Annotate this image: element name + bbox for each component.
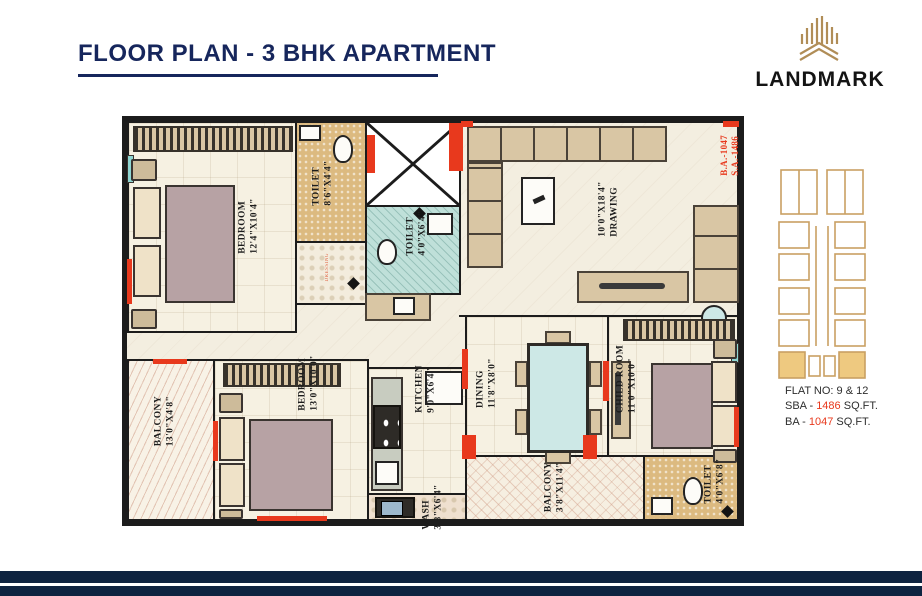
- stove: [373, 405, 401, 449]
- brand-logo: LANDMARK: [740, 14, 900, 92]
- pillow: [133, 187, 161, 239]
- label-drawing: 10'0"X18'4"DRAWING: [598, 181, 621, 237]
- landmark-building-icon: [788, 14, 852, 66]
- label-balcony-2: BALCONY3'8"X11'4": [544, 462, 567, 512]
- flat-number-line: FLAT NO: 9 & 12: [785, 384, 878, 399]
- door-accent: [367, 135, 375, 173]
- label-balcony-1: BALCONY13'0"X4'8": [154, 396, 177, 446]
- lift-x-icon: [367, 123, 459, 205]
- brand-name: LANDMARK: [740, 68, 900, 92]
- title-underline: [78, 74, 438, 77]
- door-accent: [257, 516, 327, 521]
- sink: [427, 213, 453, 235]
- tv: [599, 283, 665, 289]
- door-accent: [603, 361, 609, 401]
- bed-2: [249, 419, 333, 511]
- wardrobe-2: [223, 363, 341, 387]
- door-accent: [723, 121, 739, 127]
- toilet-wc: [683, 477, 703, 505]
- pillow: [133, 245, 161, 297]
- label-wash: WASH3'8"X6'4": [422, 484, 445, 529]
- lift-shaft: [365, 121, 461, 207]
- chair: [589, 409, 602, 435]
- side-table: [219, 509, 243, 519]
- sofa-left: [467, 162, 503, 268]
- dining-table: [527, 343, 589, 453]
- label-toilet-2: TOILET4'0"X6'4": [406, 210, 429, 255]
- dressing-area: [295, 241, 367, 305]
- pillow: [711, 361, 737, 403]
- sofa-row: [467, 126, 667, 162]
- bed-1: [165, 185, 235, 303]
- side-table: [713, 339, 737, 359]
- door-accent: [153, 359, 187, 364]
- side-table: [131, 159, 157, 181]
- floor-plan: BEDROOM12'4"X10'4" TOILET8'6"X4'4" TOILE…: [122, 116, 744, 526]
- side-table: [131, 309, 157, 329]
- sink: [299, 125, 321, 141]
- chair: [589, 361, 602, 387]
- door-accent: [461, 121, 473, 127]
- sba-line: SBA - 1486 SQ.FT.: [785, 399, 878, 414]
- pillow: [219, 417, 245, 461]
- door-accent: [127, 259, 132, 304]
- wardrobe-3: [623, 319, 735, 341]
- key-plan: [776, 168, 868, 380]
- side-table: [219, 393, 243, 413]
- label-child-room: CHILD ROOM11'0"X10'0": [616, 345, 639, 413]
- door-accent: [449, 123, 463, 171]
- label-dining: DINING11'8"X8'0": [476, 358, 499, 408]
- toilet-wc: [377, 239, 397, 265]
- wardrobe-1: [133, 126, 293, 152]
- door-accent: [734, 407, 739, 447]
- page-title: FLOOR PLAN - 3 BHK APARTMENT: [78, 40, 496, 68]
- pillow: [219, 463, 245, 507]
- kitchen-sink: [375, 461, 399, 485]
- door-accent: [462, 349, 468, 389]
- door-accent: [462, 435, 476, 459]
- label-toilet-3: TOILET4'0"X6'8": [704, 458, 727, 503]
- ba-line: BA - 1047 SQ.FT.: [785, 415, 878, 430]
- sink: [651, 497, 673, 515]
- label-kitchen: KITCHEN9'0"X6'4": [415, 365, 438, 413]
- door-accent: [583, 435, 597, 459]
- sofa-right: [693, 205, 739, 303]
- dress-annotation: DRESSING: [325, 253, 330, 281]
- toilet-wc: [333, 135, 353, 163]
- washing-machine-door: [381, 501, 403, 516]
- bed-3: [651, 363, 713, 449]
- footer-bar-bottom: [0, 586, 922, 596]
- label-bedroom-1: BEDROOM12'4"X10'4": [238, 198, 261, 254]
- area-annotation: B.A.-1047S.A.-1486: [719, 135, 740, 176]
- label-toilet-1: TOILET8'6"X4'4": [312, 160, 335, 205]
- door-accent: [213, 421, 218, 461]
- flat-info: FLAT NO: 9 & 12 SBA - 1486 SQ.FT. BA - 1…: [785, 384, 878, 430]
- sink: [393, 297, 415, 315]
- label-bedroom-2: BEDROOM13'0"X10'0": [298, 355, 321, 411]
- footer-bar-top: [0, 571, 922, 583]
